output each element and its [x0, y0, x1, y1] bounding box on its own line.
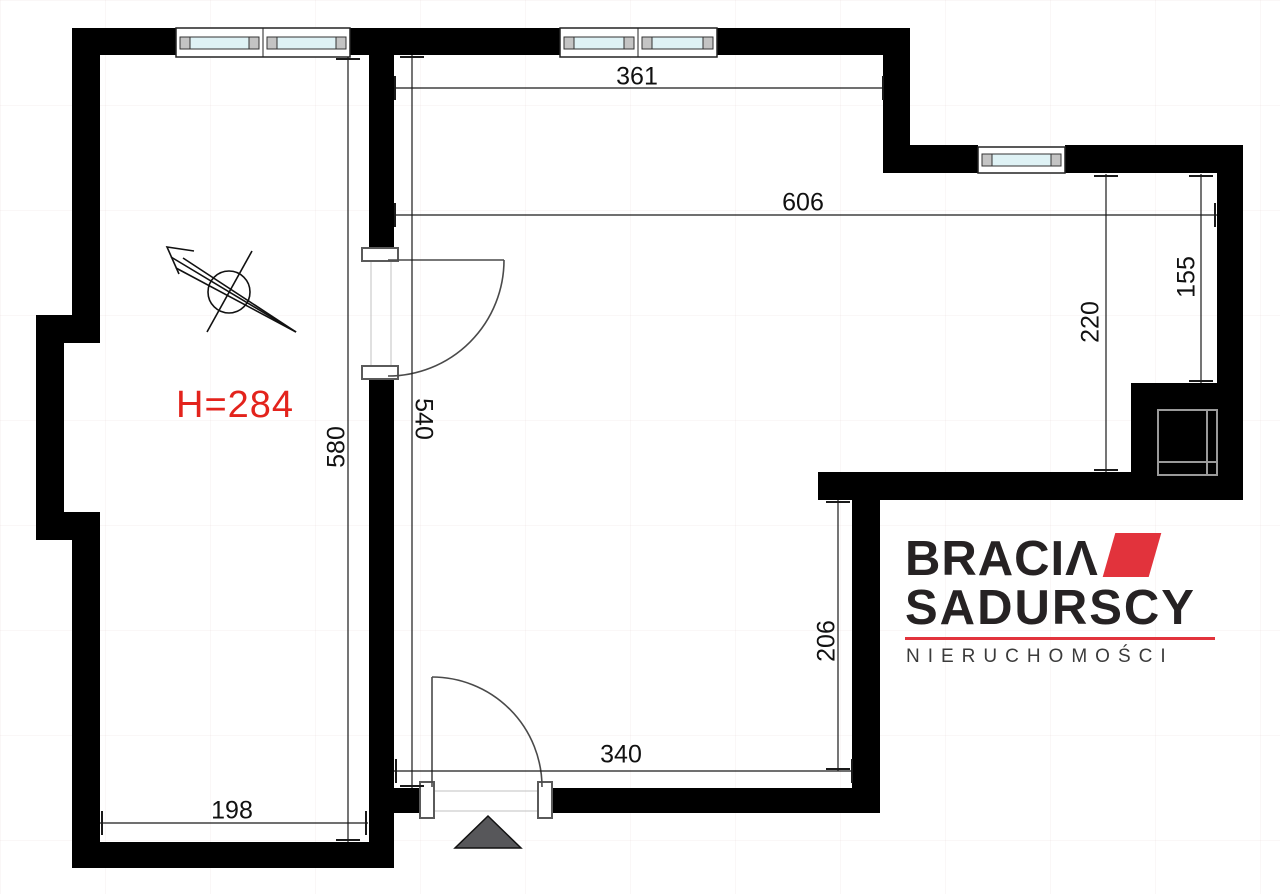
dim-label-220: 220 — [1079, 301, 1104, 343]
dim-label-606: 606 — [782, 191, 824, 216]
window-top-left-icon — [176, 28, 350, 57]
entrance-triangle-icon — [455, 816, 521, 848]
window-top-middle-icon — [560, 28, 717, 57]
brand-rule — [905, 637, 1215, 640]
ceiling-height-label: H=284 — [176, 386, 294, 424]
dim-label-198: 198 — [211, 799, 253, 824]
floor-plan: 361 606 155 220 580 540 206 340 198 H=28… — [0, 0, 1280, 894]
brand-name-bottom: SADURSCY — [905, 584, 1196, 633]
brand-tagline: NIERUCHOMOŚCI — [906, 647, 1174, 666]
window-top-right-icon — [978, 147, 1065, 173]
brand-name-top: BRACIΛ — [905, 535, 1099, 584]
north-arrow-icon — [167, 247, 296, 332]
dim-label-580: 580 — [325, 426, 350, 468]
dim-label-340: 340 — [600, 743, 642, 768]
dim-label-155: 155 — [1175, 256, 1200, 298]
dim-label-206: 206 — [815, 620, 840, 662]
dim-label-540: 540 — [411, 398, 436, 440]
entrance-door-swing-icon — [420, 677, 552, 818]
interior-door-swing-icon — [362, 248, 504, 379]
dim-label-361: 361 — [616, 65, 658, 90]
